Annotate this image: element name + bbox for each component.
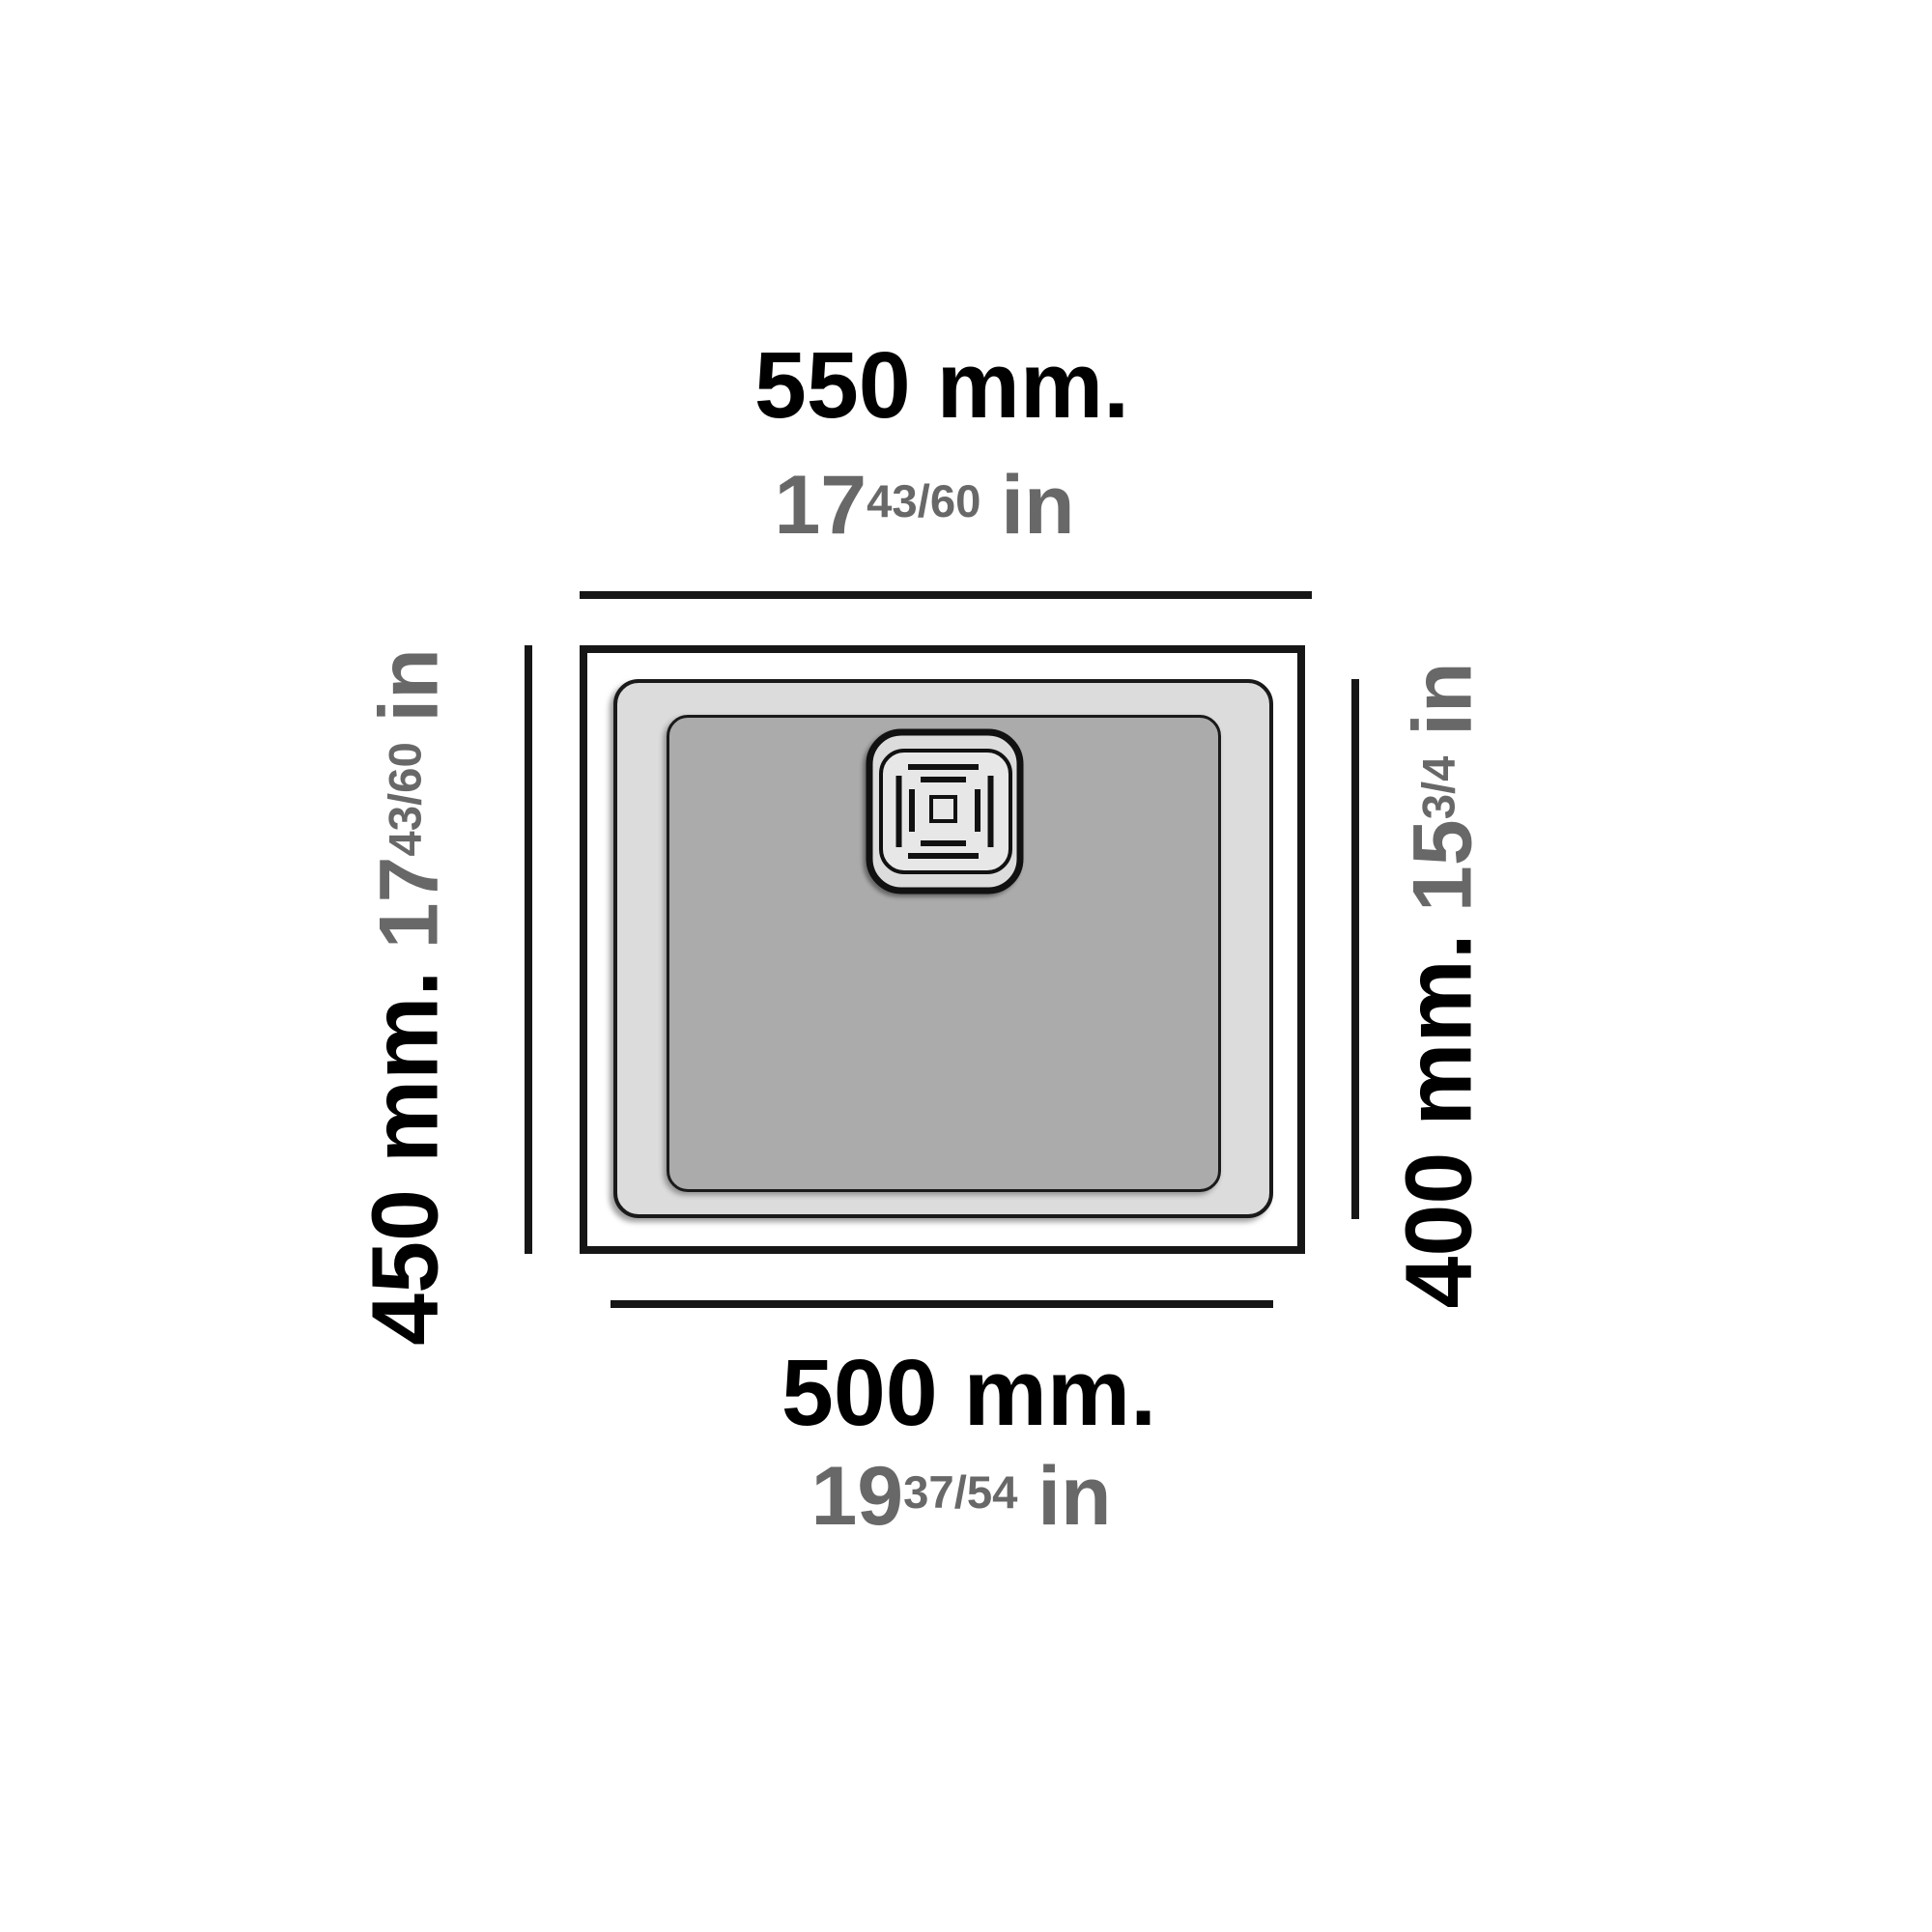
dimension-label-left: 450 mm.1743/60in — [358, 648, 452, 1346]
dimension-line-bottom — [611, 1300, 1273, 1308]
inch-unit: in — [363, 648, 456, 722]
inch-whole: 17 — [774, 459, 867, 552]
dimension-line-left — [525, 645, 532, 1254]
inch-whole: 17 — [363, 857, 456, 950]
inch-unit: in — [1001, 459, 1074, 552]
inch-fraction: 37/54 — [903, 1467, 1017, 1519]
dimension-label-bottom-mm: 500 mm. — [781, 1346, 1156, 1439]
inch-whole: 19 — [810, 1450, 903, 1543]
inch-fraction: 3/4 — [1413, 756, 1464, 820]
dimension-label-right-mm: 400 mm. — [1386, 933, 1492, 1308]
dimension-line-top — [580, 591, 1312, 599]
dimension-label-top-inches: 1743/60in — [774, 464, 1074, 547]
inch-unit: in — [1397, 662, 1490, 735]
inch-fraction: 43/60 — [380, 742, 431, 856]
dimension-line-right — [1351, 679, 1359, 1219]
inch-unit: in — [1037, 1450, 1111, 1543]
dimension-label-top-mm: 550 mm. — [754, 338, 1129, 432]
sink-dimension-diagram: 550 mm. 1743/60in 450 mm.1743/60in 400 m… — [0, 0, 1932, 1932]
dimension-label-left-inches: 1743/60in — [363, 648, 456, 949]
inch-whole: 15 — [1397, 819, 1490, 912]
dimension-label-bottom-inches: 1937/54in — [810, 1455, 1111, 1538]
inch-fraction: 43/60 — [867, 476, 980, 527]
drain-icon — [866, 728, 1024, 895]
dimension-label-right: 400 mm.153/4in — [1392, 662, 1486, 1308]
dimension-label-right-inches: 153/4in — [1397, 662, 1490, 911]
dimension-label-left-mm: 450 mm. — [353, 971, 458, 1346]
